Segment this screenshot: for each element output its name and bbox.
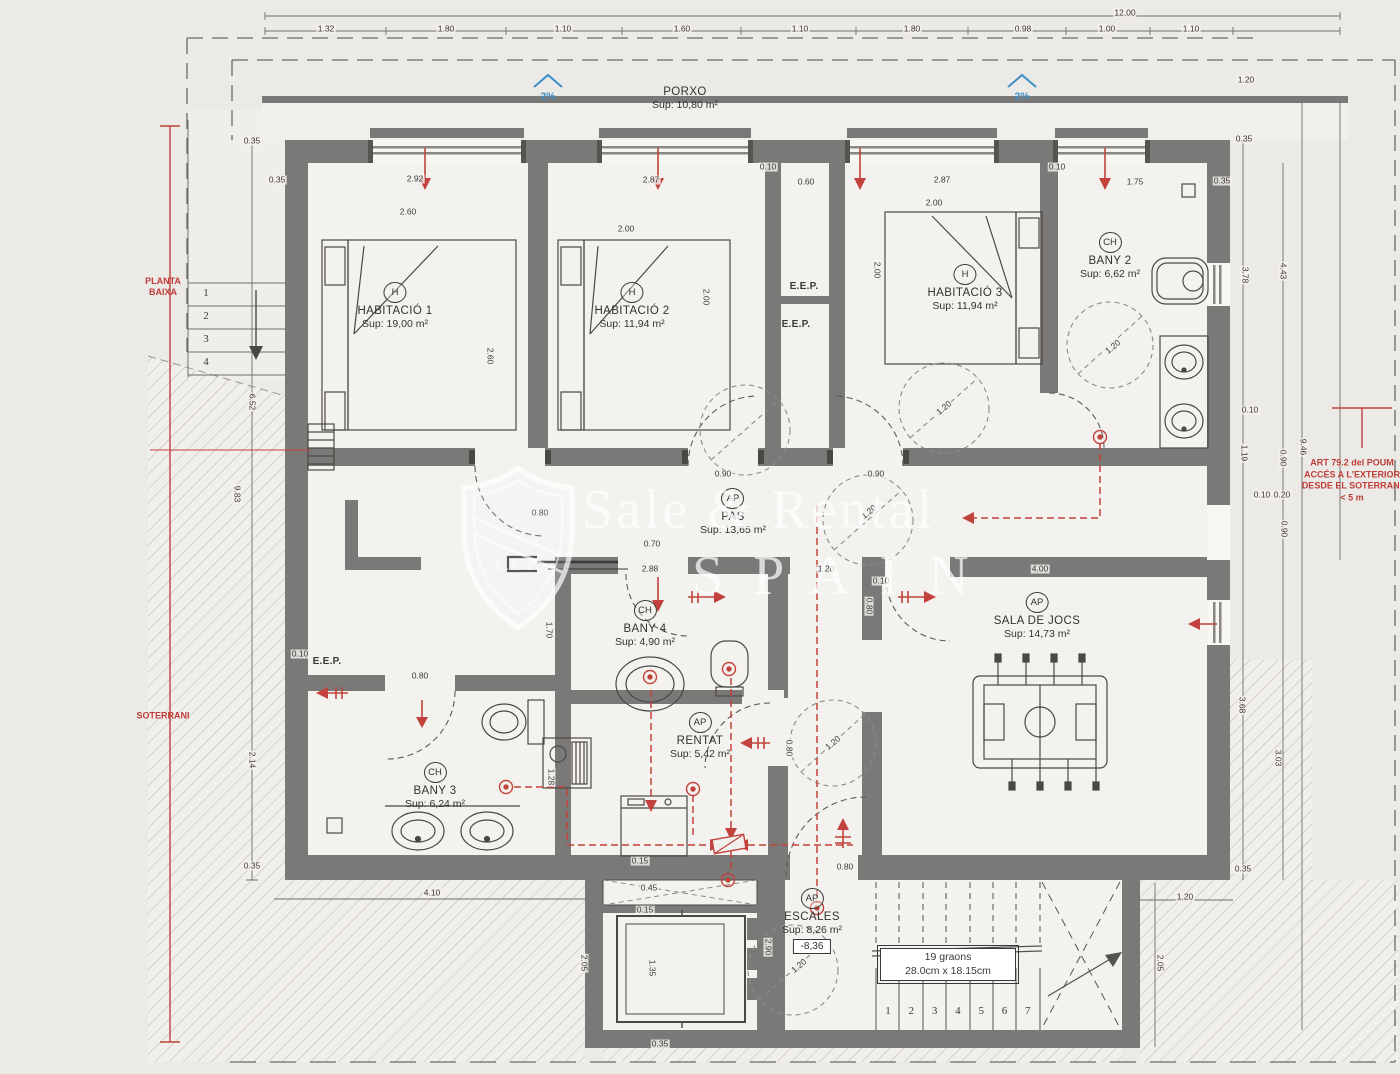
room-label-escales: APESCALESSup: 8,26 m²-8,36	[782, 888, 842, 954]
room-name: BANY 3	[405, 785, 465, 797]
room-name: PORXO	[652, 86, 718, 98]
dimension-label: 0.10	[872, 577, 891, 586]
room-type-icon: AP	[689, 712, 712, 733]
room-type-icon: H	[384, 282, 407, 303]
dimension-label: 1.75	[1126, 178, 1145, 187]
room-label-bany-3: CHBANY 3Sup: 6,24 m²	[405, 762, 465, 810]
room-area: Sup: 8,26 m²	[782, 924, 842, 936]
room-area: Sup: 6,24 m²	[405, 798, 465, 810]
dimension-label: 2.87	[642, 176, 661, 185]
dimension-label: 2.92	[406, 175, 425, 184]
room-area: Sup: 6,62 m²	[1080, 268, 1140, 280]
level-label-soterrani: SOTERRANI	[120, 710, 206, 721]
dimension-label: 0.90	[714, 470, 733, 479]
dimension-label: 1.20	[934, 399, 954, 418]
dimension-label: 1.20	[1103, 338, 1123, 357]
dimension-label: 1.20	[859, 503, 879, 522]
room-area: Sup: 19,00 m²	[357, 318, 432, 330]
dimension-label: 4.43	[1279, 262, 1288, 281]
dimension-label: 1.60	[673, 25, 692, 34]
dimension-label: 0.80	[865, 597, 874, 616]
slope-label: 2%	[539, 91, 556, 102]
room-area: Sup: 11,94 m²	[594, 318, 669, 330]
step-number: 2	[908, 1006, 916, 1018]
room-area: Sup: 4,90 m²	[615, 636, 675, 648]
room-type-icon: AP	[1025, 592, 1048, 613]
dimension-label: 0.70	[643, 540, 662, 549]
room-type-icon: CH	[1099, 232, 1122, 253]
dimension-label: 0.45	[640, 884, 659, 893]
room-name: PAS	[700, 511, 766, 523]
dimension-label: 1.32	[317, 25, 336, 34]
dimension-label: 1.20	[817, 565, 836, 574]
dimension-label: 1.80	[437, 25, 456, 34]
dimension-label: 0.90	[1280, 520, 1289, 539]
room-type-icon: CH	[424, 762, 447, 783]
room-area: Sup: 11,94 m²	[927, 300, 1002, 312]
dimension-label: 2.00	[925, 199, 944, 208]
dimension-label: 0.10	[291, 650, 310, 659]
dimension-label: 0.35	[1234, 865, 1253, 874]
dimension-label: 6.52	[248, 393, 257, 412]
dimension-label: 1.70	[545, 621, 554, 640]
dimension-label: 0.10	[759, 163, 778, 172]
dimension-label: 0.15	[636, 906, 655, 915]
room-label-bany-2: CHBANY 2Sup: 6,62 m²	[1080, 232, 1140, 280]
dimension-label: 2.90	[764, 938, 773, 957]
room-name: HABITACIÓ 1	[357, 305, 432, 317]
dimension-label: 0.98	[1014, 25, 1033, 34]
room-label-habitaci-3: HHABITACIÓ 3Sup: 11,94 m²	[927, 264, 1002, 312]
dimension-label: 2.00	[617, 225, 636, 234]
dimension-label: 2.60	[486, 347, 495, 366]
room-type-icon: AP	[801, 888, 824, 909]
room-name: HABITACIÓ 2	[594, 305, 669, 317]
dimension-label: 9.46	[1299, 438, 1308, 457]
dimension-label: 0.35	[651, 1040, 670, 1049]
step-number: 4	[202, 357, 210, 369]
dimension-label: 0.10	[1253, 491, 1272, 500]
room-name: HABITACIÓ 3	[927, 287, 1002, 299]
room-label-pas: APPASSup: 13,65 m²	[700, 488, 766, 536]
dimension-label: 2.00	[873, 261, 882, 280]
dimension-label: 1.19	[1240, 444, 1249, 463]
room-type-icon: CH	[634, 600, 657, 621]
dimension-label: 0.80	[785, 739, 794, 758]
dimension-label: 3.03	[1274, 749, 1283, 768]
room-name: ESCALES	[782, 911, 842, 923]
step-number: 1	[202, 288, 210, 300]
dimension-label: 1.20	[789, 957, 809, 976]
labels-layer: 12.001.321.801.101.601.101.800.981.001.1…	[0, 0, 1400, 1074]
step-number: 5	[977, 1006, 985, 1018]
room-label-porxo: PORXOSup: 10,80 m²	[652, 84, 718, 111]
dimension-label: 12.00	[1113, 9, 1136, 18]
dimension-label: 0.10	[1048, 163, 1067, 172]
room-label-sala-de-jocs: APSALA DE JOCSSup: 14,73 m²	[994, 592, 1081, 640]
step-number: 1	[884, 1006, 892, 1018]
dimension-label: 0.90	[867, 470, 886, 479]
eep-shaft-label: E.E.P.	[312, 657, 343, 668]
dimension-label: 0.60	[797, 178, 816, 187]
dimension-label: 0.35	[1213, 177, 1232, 186]
dimension-label: 4.10	[423, 889, 442, 898]
dimension-label: 0.35	[268, 176, 287, 185]
dimension-label: 1.80	[903, 25, 922, 34]
step-number: 3	[931, 1006, 939, 1018]
room-area: Sup: 10,80 m²	[652, 99, 718, 111]
level-label-planta-baixa: PLANTA BAIXA	[135, 276, 191, 299]
dimension-label: 2.14	[248, 751, 257, 770]
dimension-label: 1.10	[791, 25, 810, 34]
dimension-label: 1.20	[1237, 76, 1256, 85]
dimension-label: 1.35	[648, 959, 657, 978]
room-name: BANY 2	[1080, 255, 1140, 267]
dimension-label: 9.83	[233, 485, 242, 504]
room-label-rentat: APRENTATSup: 5,42 m²	[670, 712, 730, 760]
dimension-label: 2.88	[641, 565, 660, 574]
dimension-label: 3.78	[1241, 266, 1250, 285]
dimension-label: 0.20	[1273, 491, 1292, 500]
dimension-label: 2.00	[702, 288, 711, 307]
dimension-label: 1.20	[823, 734, 843, 753]
dimension-label: 0.15	[631, 857, 650, 866]
regulation-note: ART 79.2 del POUM ACCÉS A L'EXTERIOR DES…	[1296, 458, 1400, 505]
dimension-label: 2.05	[580, 954, 589, 973]
floor-plan-drawing: E.E.P. Sale & Rental SPAIN 19 graons 28.…	[0, 0, 1400, 1074]
step-number: 3	[202, 334, 210, 346]
room-area: Sup: 5,42 m²	[670, 748, 730, 760]
room-area: Sup: 14,73 m²	[994, 628, 1081, 640]
room-label-habitaci-1: HHABITACIÓ 1Sup: 19,00 m²	[357, 282, 432, 330]
dimension-label: 0.35	[243, 862, 262, 871]
room-area: Sup: 13,65 m²	[700, 524, 766, 536]
dimension-label: 0.90	[1279, 449, 1288, 468]
dimension-label: 2.05	[1156, 954, 1165, 973]
dimension-label: 4.00	[1031, 565, 1050, 574]
dimension-label: 1.20	[1176, 893, 1195, 902]
dimension-label: 2.87	[933, 176, 952, 185]
room-type-icon: AP	[721, 488, 744, 509]
room-label-bany-4: CHBANY 4Sup: 4,90 m²	[615, 600, 675, 648]
dimension-label: 1.10	[1182, 25, 1201, 34]
dimension-label: 3.68	[1238, 696, 1247, 715]
room-name: SALA DE JOCS	[994, 615, 1081, 627]
dimension-label: 0.80	[411, 672, 430, 681]
step-number: 7	[1024, 1006, 1032, 1018]
dimension-label: 1.00	[1098, 25, 1117, 34]
room-name: BANY 4	[615, 623, 675, 635]
dimension-label: 2.60	[399, 208, 418, 217]
level-value: -8,36	[793, 939, 832, 954]
dimension-label: 0.10	[1241, 406, 1260, 415]
room-name: RENTAT	[670, 735, 730, 747]
dimension-label: 1.28	[547, 768, 556, 787]
dimension-label: 0.80	[836, 863, 855, 872]
dimension-label: 1.10	[554, 25, 573, 34]
step-number: 2	[202, 311, 210, 323]
step-number: 4	[954, 1006, 962, 1018]
room-type-icon: H	[621, 282, 644, 303]
eep-shaft-label: E.E.P.	[789, 282, 820, 293]
slope-label: 2%	[1013, 91, 1030, 102]
dimension-label: 0.35	[1235, 135, 1254, 144]
room-label-habitaci-2: HHABITACIÓ 2Sup: 11,94 m²	[594, 282, 669, 330]
eep-shaft-label: E.E.P.	[781, 320, 812, 331]
dimension-label: 0.80	[531, 509, 550, 518]
step-number: 6	[1001, 1006, 1009, 1018]
dimension-label: 0.35	[243, 137, 262, 146]
room-type-icon: H	[954, 264, 977, 285]
